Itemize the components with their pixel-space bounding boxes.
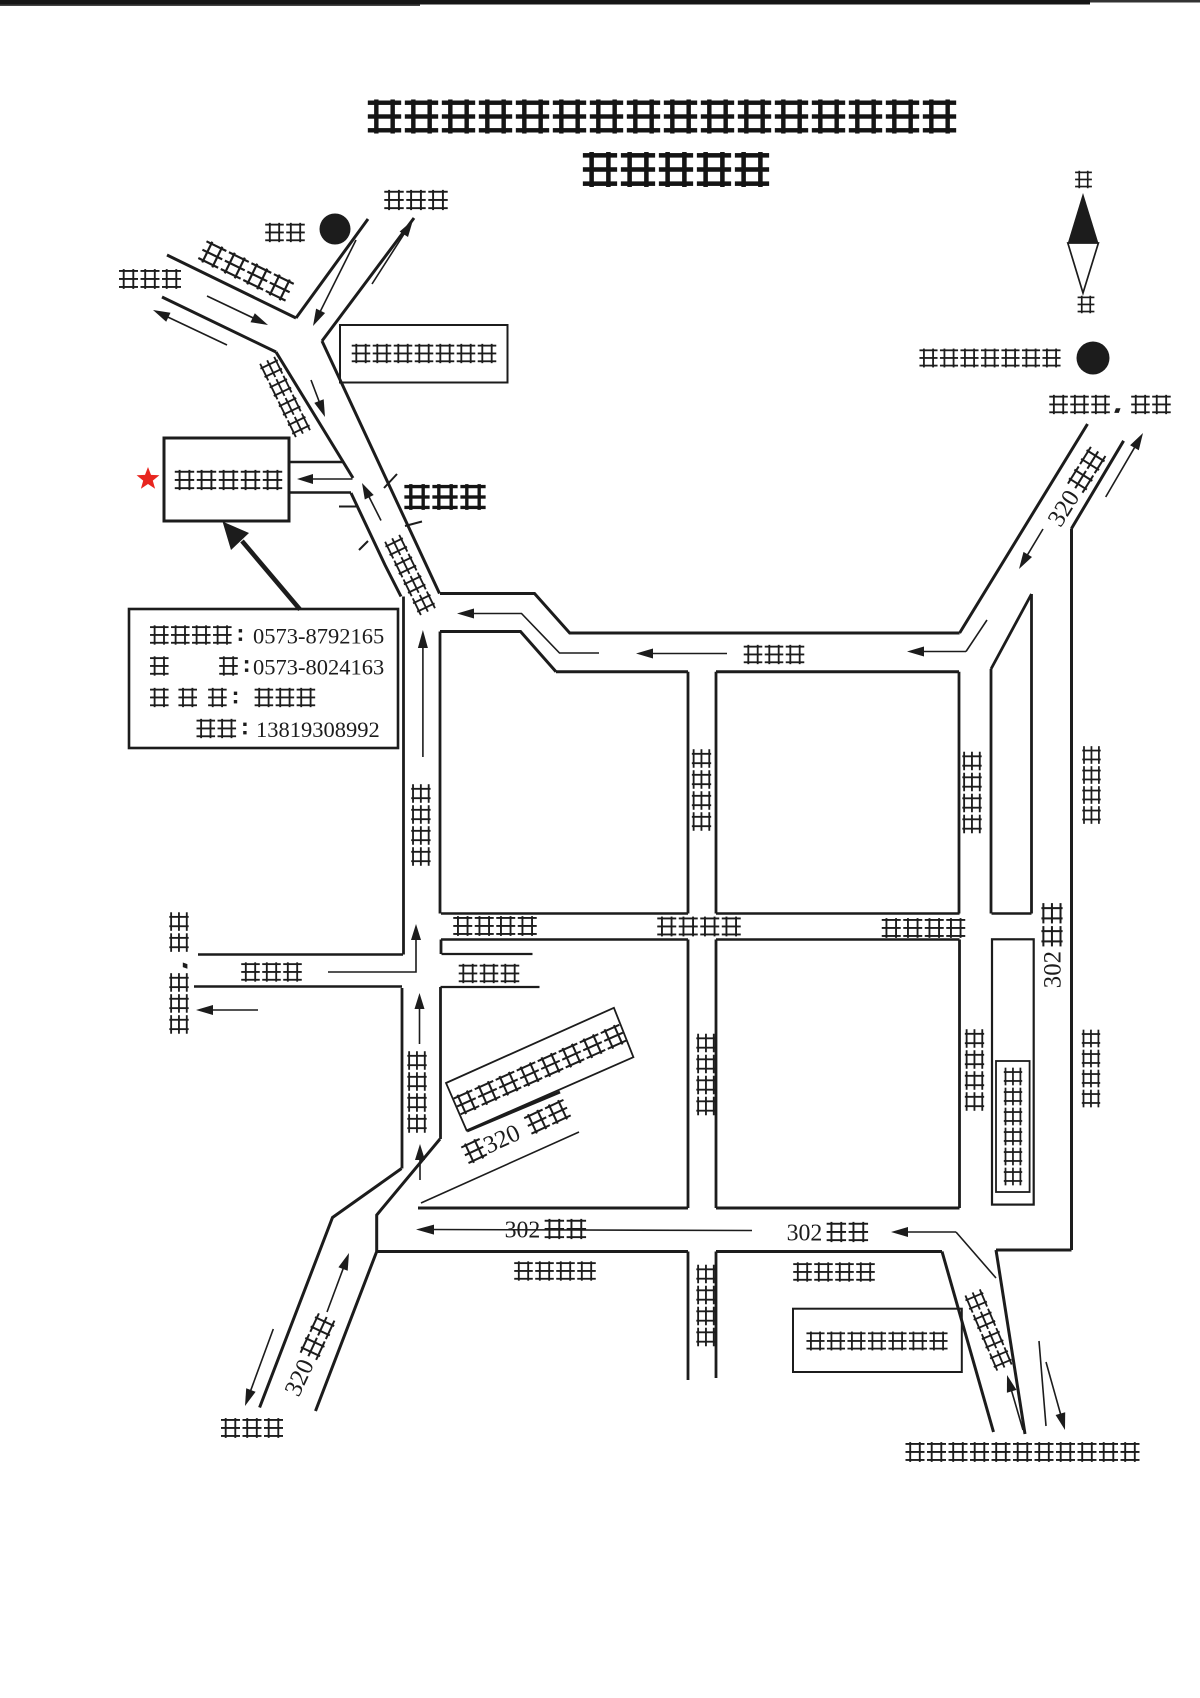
svg-text:0573-8024163: 0573-8024163 [253,655,384,680]
svg-text:320: 320 [1043,486,1086,532]
svg-text:320: 320 [280,1355,320,1400]
svg-text:302: 302 [505,1217,541,1243]
svg-text:320: 320 [479,1119,524,1159]
svg-text:302: 302 [1040,951,1067,988]
svg-text:302: 302 [787,1220,823,1246]
svg-text:0573-8792165: 0573-8792165 [253,624,384,649]
svg-text:13819308992: 13819308992 [256,717,380,742]
